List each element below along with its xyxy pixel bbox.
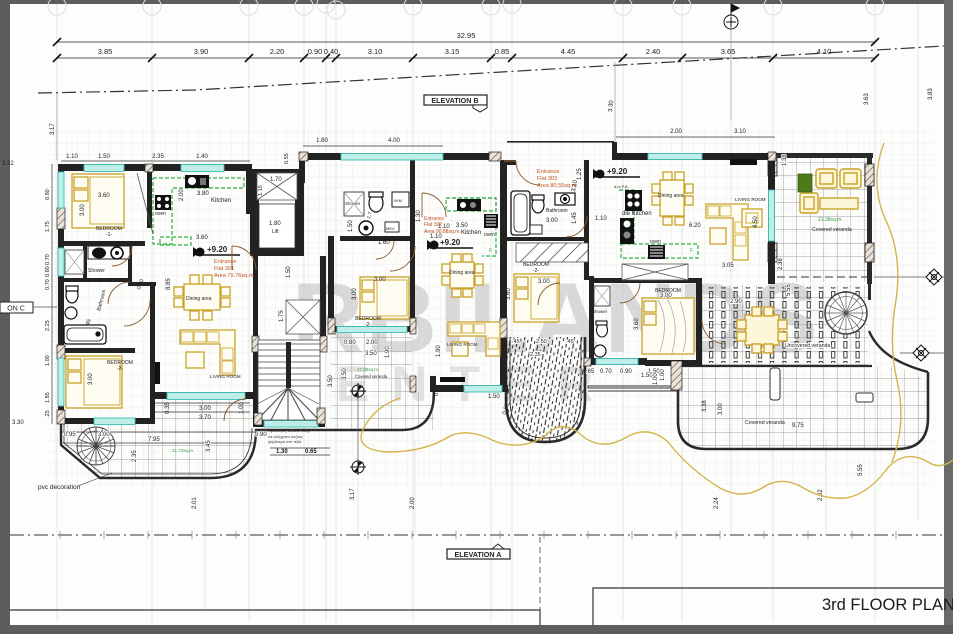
- svg-text:Flat 302: Flat 302: [424, 222, 442, 228]
- svg-text:Kitchen: Kitchen: [461, 230, 481, 236]
- svg-text:2.00: 2.00: [179, 189, 185, 201]
- svg-text:Covered veranda: Covered veranda: [812, 227, 852, 233]
- svg-text:4.45: 4.45: [561, 47, 576, 56]
- svg-text:Shower: Shower: [592, 309, 608, 314]
- svg-text:0.80: 0.80: [344, 340, 356, 346]
- svg-text:1.50: 1.50: [641, 373, 653, 379]
- svg-text:die Kitchen: die Kitchen: [622, 211, 652, 217]
- svg-text:3.63: 3.63: [864, 93, 870, 105]
- svg-text:3.30: 3.30: [12, 420, 24, 426]
- svg-text:0.70: 0.70: [600, 369, 612, 375]
- svg-text:1.30: 1.30: [276, 449, 288, 455]
- svg-text:1.30: 1.30: [416, 210, 422, 222]
- svg-text:1.60: 1.60: [378, 240, 390, 246]
- svg-text:3.00: 3.00: [88, 373, 94, 385]
- svg-text:Dining area: Dining area: [658, 193, 684, 199]
- svg-text:3.00: 3.00: [718, 403, 724, 415]
- svg-text:17.29sq.m.: 17.29sq.m.: [357, 367, 379, 372]
- svg-text:LIVING ROOM: LIVING ROOM: [210, 374, 241, 379]
- svg-text:2.35: 2.35: [530, 352, 541, 358]
- svg-text:3.50: 3.50: [342, 368, 348, 380]
- svg-text:0.95: 0.95: [64, 432, 76, 438]
- svg-text:3.00: 3.00: [538, 279, 550, 285]
- svg-text:ELEVATION A: ELEVATION A: [455, 550, 502, 559]
- svg-text:Bathroom: Bathroom: [546, 208, 568, 214]
- svg-text:Uncovered veranda: Uncovered veranda: [785, 343, 830, 349]
- svg-text:Entrance: Entrance: [537, 169, 559, 175]
- svg-text:2.35: 2.35: [132, 450, 138, 462]
- svg-text:1.10: 1.10: [595, 216, 607, 222]
- svg-text:oven: oven: [484, 232, 495, 238]
- svg-text:1.75: 1.75: [279, 310, 285, 322]
- svg-text:0.60: 0.60: [45, 266, 51, 277]
- svg-text:LIVING ROOM: LIVING ROOM: [735, 197, 766, 202]
- svg-text:.25: .25: [45, 410, 51, 418]
- svg-text:2.40: 2.40: [646, 47, 661, 56]
- svg-text:3rd FLOOR PLAN: 3rd FLOOR PLAN: [822, 596, 953, 614]
- svg-text:2.00: 2.00: [366, 340, 378, 346]
- svg-text:0.40: 0.40: [324, 47, 339, 56]
- svg-text:Kitchen: Kitchen: [211, 198, 231, 204]
- svg-text:7.95: 7.95: [148, 437, 160, 443]
- svg-text:3.90: 3.90: [194, 47, 209, 56]
- svg-text:3.05: 3.05: [722, 263, 734, 269]
- svg-text:3.45: 3.45: [206, 440, 212, 452]
- svg-text:Lift: Lift: [272, 229, 279, 235]
- svg-text:3.50: 3.50: [456, 223, 468, 229]
- svg-text:1.50: 1.50: [98, 154, 110, 160]
- svg-text:d.m F.A.: d.m F.A.: [614, 184, 629, 189]
- svg-text:2.50: 2.50: [536, 339, 547, 345]
- svg-text:1.50: 1.50: [286, 266, 292, 278]
- svg-text:1.45: 1.45: [572, 212, 578, 224]
- svg-text:4.50: 4.50: [753, 216, 759, 228]
- svg-text:MEX: MEX: [386, 226, 395, 231]
- svg-text:1.38: 1.38: [782, 154, 788, 166]
- svg-text:W.M: W.M: [394, 198, 402, 203]
- svg-text:21.72sq.m.: 21.72sq.m.: [172, 448, 194, 453]
- svg-text:1.85: 1.85: [45, 392, 51, 403]
- svg-text:3.00: 3.00: [660, 293, 672, 299]
- svg-text:2.25: 2.25: [45, 320, 51, 331]
- svg-text:Shower: Shower: [88, 268, 105, 274]
- svg-text:1.40: 1.40: [196, 154, 208, 160]
- svg-text:3.38: 3.38: [702, 400, 708, 412]
- svg-text:9.75: 9.75: [792, 423, 804, 429]
- svg-text:Dining area: Dining area: [186, 296, 212, 302]
- svg-text:2.24: 2.24: [714, 497, 720, 509]
- svg-text:1.80: 1.80: [269, 221, 281, 227]
- svg-text:0.70: 0.70: [45, 279, 51, 290]
- svg-text:Dining area: Dining area: [449, 270, 475, 276]
- svg-text:3.83: 3.83: [928, 88, 934, 100]
- svg-text:pvc decoration: pvc decoration: [38, 484, 81, 491]
- svg-text:3.60: 3.60: [634, 318, 640, 330]
- svg-text:2.01: 2.01: [192, 497, 198, 509]
- svg-text:Area 79.76sq.m.: Area 79.76sq.m.: [214, 273, 255, 279]
- svg-text:1.50: 1.50: [348, 220, 354, 232]
- svg-text:F: F: [690, 248, 693, 254]
- svg-text:3.00: 3.00: [374, 277, 386, 283]
- svg-text:-2-: -2-: [365, 322, 371, 328]
- svg-text:ELEVATION B: ELEVATION B: [431, 96, 478, 105]
- svg-text:2.20: 2.20: [270, 47, 285, 56]
- svg-text:1.90: 1.90: [436, 345, 442, 357]
- svg-text:3.00: 3.00: [80, 204, 86, 216]
- svg-text:.45: .45: [566, 339, 574, 345]
- svg-text:0.65: 0.65: [305, 449, 317, 455]
- svg-text:0.55: 0.55: [284, 153, 290, 164]
- svg-text:6.20: 6.20: [689, 223, 701, 229]
- svg-text:3.65: 3.65: [721, 47, 736, 56]
- svg-text:32.95: 32.95: [457, 31, 476, 40]
- svg-text:ψηλότερο στο πλάι: ψηλότερο στο πλάι: [268, 439, 301, 444]
- svg-text:3.10: 3.10: [734, 129, 746, 135]
- svg-text:-2-: -2-: [533, 268, 539, 274]
- svg-text:3.80: 3.80: [197, 191, 209, 197]
- svg-text:1.15: 1.15: [258, 185, 264, 196]
- svg-text:3.70: 3.70: [199, 415, 211, 421]
- svg-text:Flat 301: Flat 301: [214, 266, 234, 272]
- svg-text:Covered veranda: Covered veranda: [355, 374, 388, 379]
- svg-text:Shower: Shower: [345, 201, 361, 206]
- svg-text:1.75: 1.75: [45, 221, 51, 232]
- svg-text:0.90: 0.90: [308, 47, 323, 56]
- svg-text:-2-: -2-: [117, 366, 123, 372]
- svg-text:Area 90.88sq.m.: Area 90.88sq.m.: [424, 229, 461, 235]
- svg-text:.65: .65: [586, 369, 595, 375]
- svg-text:+9.20: +9.20: [607, 167, 628, 176]
- svg-text:.45: .45: [512, 339, 520, 345]
- svg-text:0.85: 0.85: [495, 47, 510, 56]
- svg-text:Προσθήκη 1201.2 λιθής: Προσθήκη 1201.2 λιθής: [268, 428, 310, 433]
- svg-text:2.90: 2.90: [730, 299, 742, 305]
- svg-text:3.32: 3.32: [2, 161, 14, 167]
- svg-text:0.80: 0.80: [45, 189, 51, 200]
- svg-text:1.50: 1.50: [488, 394, 500, 400]
- svg-text:2.38: 2.38: [778, 258, 784, 270]
- svg-text:1.10: 1.10: [66, 154, 78, 160]
- svg-text:oven: oven: [650, 239, 661, 245]
- svg-text:3.50: 3.50: [328, 375, 334, 387]
- svg-text:0.25: 0.25: [434, 385, 440, 396]
- svg-text:5.55: 5.55: [786, 284, 792, 296]
- svg-text:1.80: 1.80: [316, 138, 328, 144]
- svg-text:F: F: [489, 248, 492, 254]
- svg-text:21.38sq.m.: 21.38sq.m.: [818, 217, 843, 223]
- svg-text:LIVING ROOM: LIVING ROOM: [447, 342, 478, 347]
- svg-text:3.00: 3.00: [199, 406, 211, 412]
- svg-text:oven: oven: [155, 211, 166, 217]
- svg-text:0.90: 0.90: [620, 369, 632, 375]
- svg-text:1.00: 1.00: [653, 373, 659, 385]
- svg-text:1.70: 1.70: [270, 177, 282, 183]
- svg-text:3.00: 3.00: [98, 432, 110, 438]
- svg-text:+9.20: +9.20: [207, 245, 228, 254]
- svg-text:Flat 303: Flat 303: [537, 176, 557, 182]
- svg-text:1.00: 1.00: [660, 369, 666, 381]
- svg-text:3.00: 3.00: [546, 218, 558, 224]
- svg-text:3.17: 3.17: [350, 488, 356, 500]
- svg-text:8.85: 8.85: [166, 278, 172, 290]
- svg-text:3.85: 3.85: [98, 47, 113, 56]
- svg-text:3.00: 3.00: [352, 288, 358, 300]
- svg-text:2.00: 2.00: [410, 497, 416, 509]
- svg-text:3.60: 3.60: [506, 288, 512, 300]
- svg-text:1.25: 1.25: [577, 168, 583, 180]
- svg-text:3.60: 3.60: [196, 235, 208, 241]
- svg-text:3.50: 3.50: [365, 351, 377, 357]
- svg-text:3.10: 3.10: [368, 47, 383, 56]
- svg-text:1.00: 1.00: [45, 355, 51, 366]
- svg-text:4.00: 4.00: [388, 138, 400, 144]
- svg-text:0.70: 0.70: [45, 254, 51, 265]
- svg-text:4.10: 4.10: [817, 47, 832, 56]
- svg-text:3.15: 3.15: [445, 47, 460, 56]
- svg-text:Entrance: Entrance: [214, 259, 236, 265]
- svg-text:2.00: 2.00: [670, 129, 682, 135]
- svg-text:5.55: 5.55: [858, 464, 864, 476]
- svg-text:1.90: 1.90: [385, 346, 391, 358]
- svg-text:2.35: 2.35: [152, 154, 164, 160]
- svg-text:Covered veranda: Covered veranda: [745, 420, 785, 426]
- svg-text:3.30: 3.30: [608, 99, 615, 112]
- svg-text:3.17: 3.17: [50, 123, 56, 135]
- svg-text:0.90: 0.90: [255, 432, 267, 438]
- svg-text:3.60: 3.60: [98, 193, 110, 199]
- svg-text:+9.20: +9.20: [440, 238, 461, 247]
- svg-text:-1-: -1-: [106, 232, 112, 238]
- svg-text:ON C: ON C: [7, 306, 25, 313]
